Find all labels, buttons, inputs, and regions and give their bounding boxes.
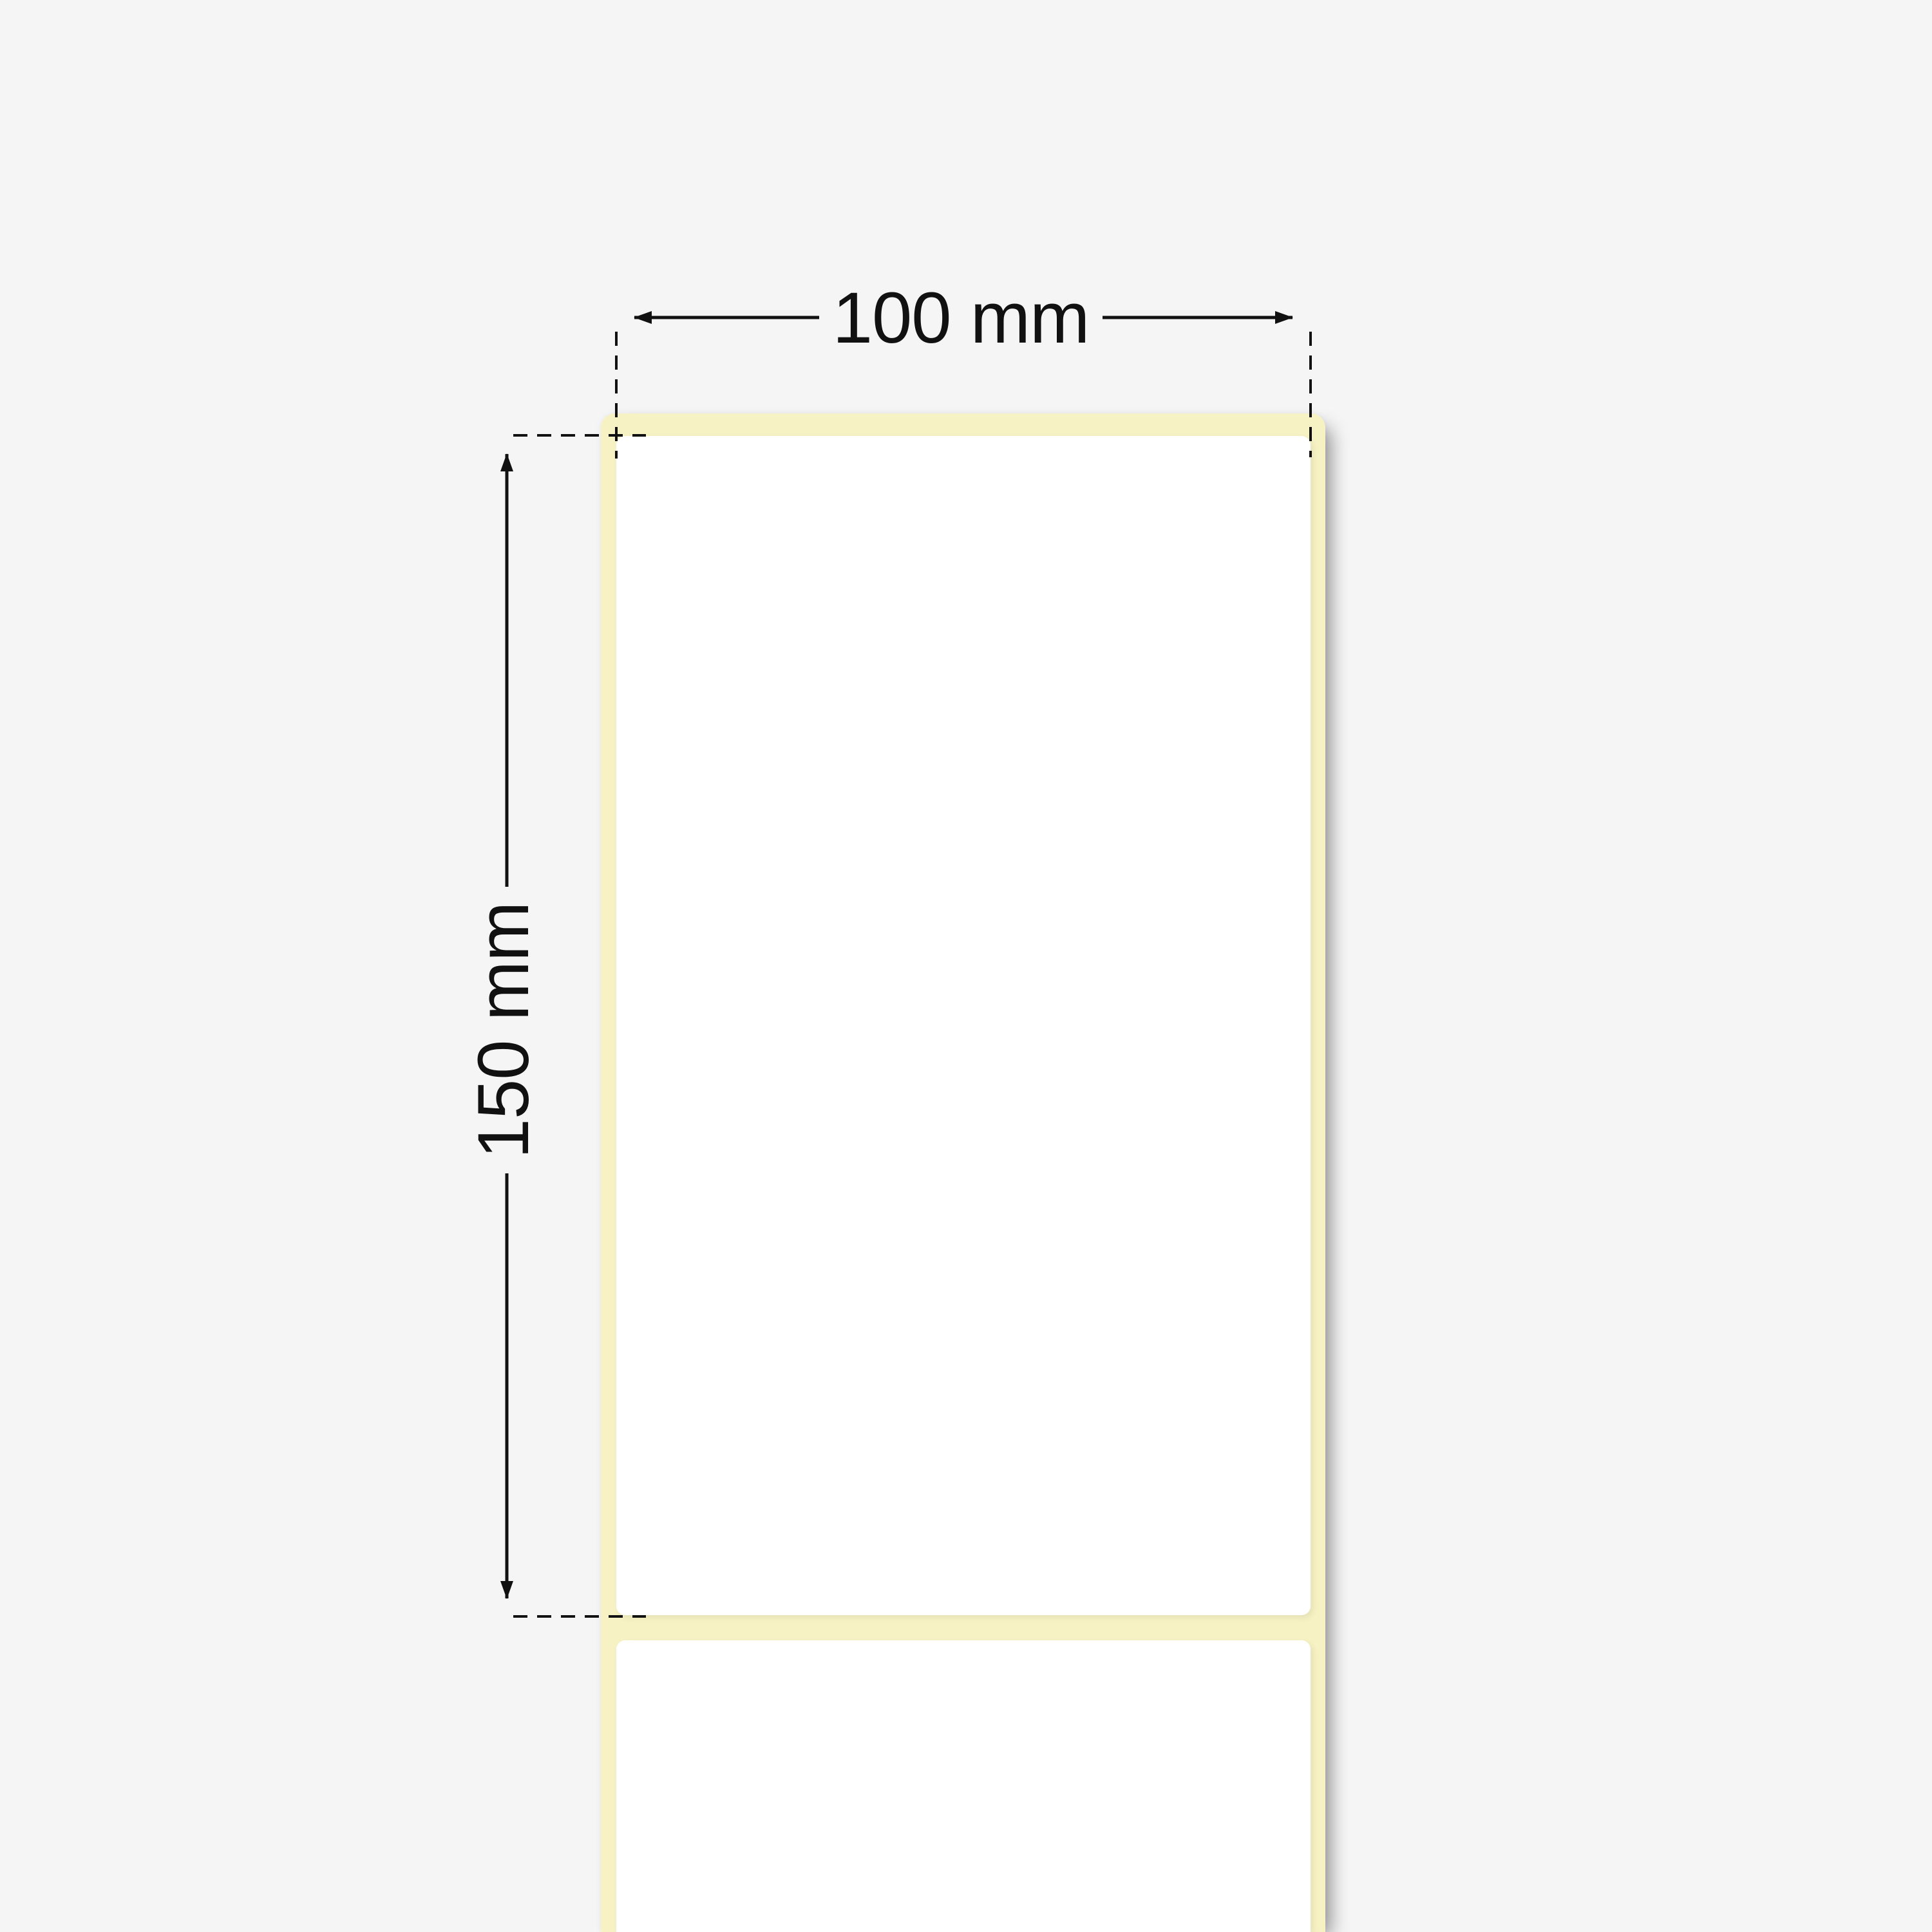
label-sheet-top: [616, 436, 1311, 1615]
label-sheet-bottom: [616, 1640, 1311, 1932]
height-dimension-label: 150 mm: [463, 902, 544, 1159]
width-dimension-label: 100 mm: [833, 278, 1090, 358]
label-dimension-diagram: 100 mm 150 mm: [0, 0, 1932, 1932]
